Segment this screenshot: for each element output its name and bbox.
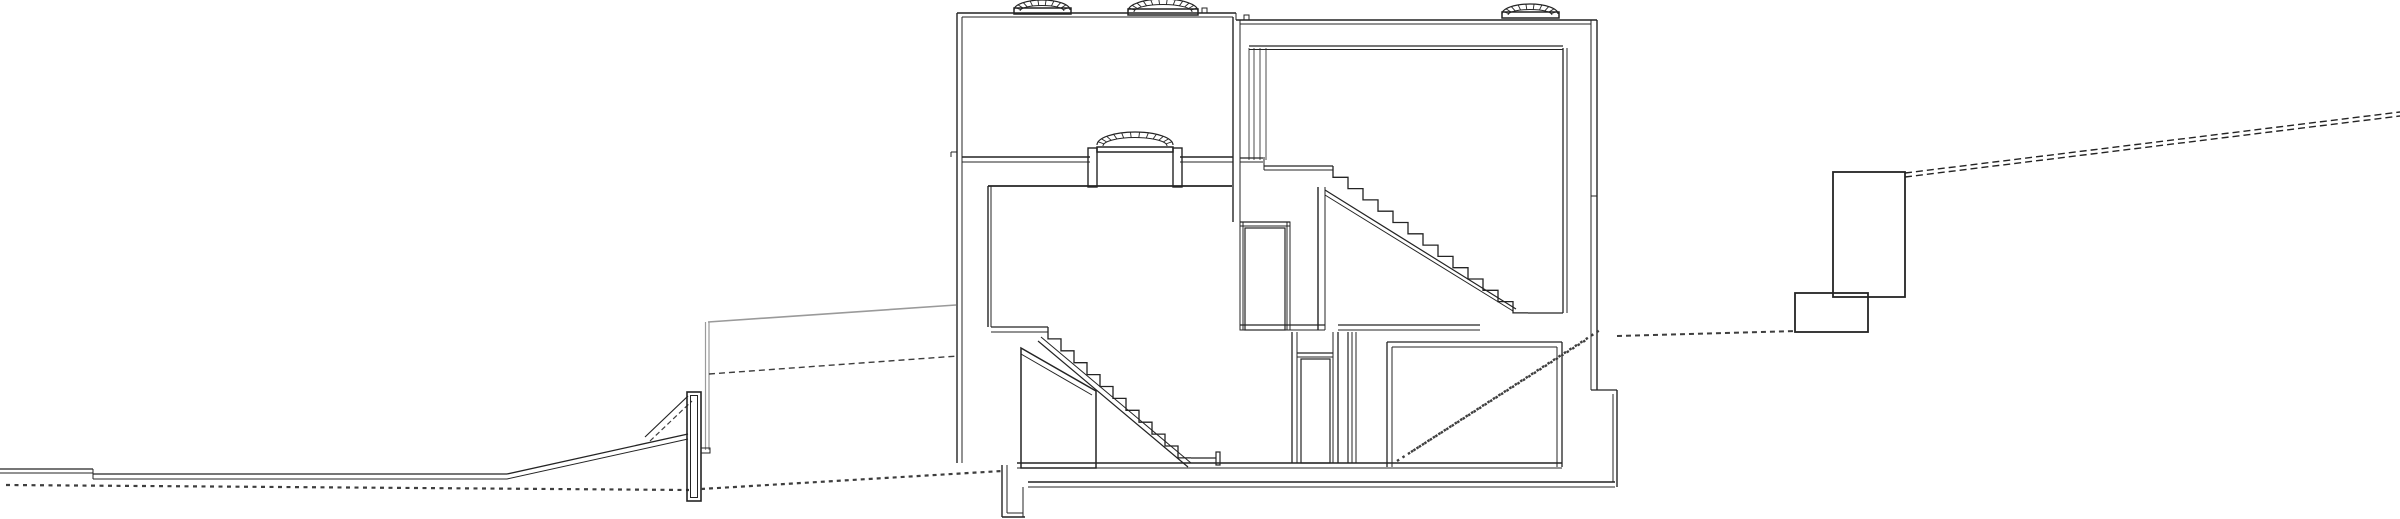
roof-vent-dome-3-tick	[1539, 5, 1542, 10]
bdoor-panel	[1301, 359, 1330, 463]
roof-vent-dome-2-tick	[1143, 1, 1146, 6]
roof-vent-dome-1-tick	[1045, 0, 1046, 5]
skylight-dome-tick	[1130, 132, 1131, 137]
walkway-hidden-edge	[709, 356, 958, 374]
main-stringer-b	[1325, 195, 1513, 311]
roof-vent-dome-2-tick	[1173, 0, 1175, 5]
ground-hidden-dashed	[6, 485, 689, 490]
mid-door-frame-left	[1240, 222, 1243, 330]
hillside-line-top	[1905, 112, 2400, 173]
retaining-wall-inner	[691, 396, 698, 498]
understair-slope-inner	[1021, 354, 1092, 395]
roof-vent-dome-1-tick	[1030, 1, 1033, 6]
roof-vent-dome-2-tick	[1132, 5, 1137, 8]
understair-wall	[1021, 348, 1096, 468]
roof-vent-dome-3-tick	[1526, 4, 1527, 9]
skylight-dome-arc-outer	[1097, 132, 1173, 145]
terrain-slope-top	[507, 434, 688, 474]
skylight-dome-tick	[1163, 139, 1168, 142]
skylight-dome-tick	[1146, 133, 1148, 138]
skylight-dome-tick	[1114, 134, 1117, 139]
basement-stringer-b	[1041, 337, 1191, 463]
skylight-dome-tick	[1098, 142, 1104, 144]
right-grade-dashed	[1617, 331, 1796, 336]
skylight-curb-left	[1088, 148, 1097, 187]
roof-vent-dome-2-tick	[1185, 3, 1189, 7]
roof-vent-dome-2-base	[1128, 9, 1198, 15]
skylight-curb-right	[1173, 148, 1182, 187]
roof-vent-dome-2-tick	[1151, 0, 1153, 5]
architectural-section-page	[0, 0, 2400, 519]
terrain-slope-bot	[507, 439, 688, 479]
skylight-dome-tick	[1166, 142, 1172, 144]
mid-door-panel	[1245, 228, 1285, 330]
skylight-dome-arc-inner	[1103, 138, 1167, 147]
skylight-dome-tick	[1107, 136, 1111, 140]
garden-shed-low	[1795, 293, 1868, 332]
roof-vent-dome-2-tick	[1189, 5, 1194, 8]
retaining-wall-outer	[687, 392, 701, 501]
mid-door-frame-right	[1287, 222, 1290, 330]
hillside-line-bot	[1905, 116, 2400, 177]
roof-vent-dome-3-tick	[1518, 5, 1521, 10]
main-stringer-a	[1325, 190, 1516, 309]
main-staircase	[1333, 166, 1528, 313]
ramp-edge-solid	[645, 396, 688, 437]
roof-vent-dome-3-tick	[1533, 4, 1534, 9]
roof-parapet-nub	[1244, 15, 1249, 20]
hidden-stair-lower	[1397, 340, 1586, 461]
building-section-drawing	[0, 0, 2400, 519]
basement-staircase	[1048, 327, 1191, 458]
garden-shed-tall	[1833, 172, 1905, 297]
skylight-dome-tick	[1122, 133, 1124, 138]
roof-vent-dome-1-tick	[1057, 3, 1061, 7]
roof-vent-dome-1-tick	[1051, 1, 1054, 6]
grade-hidden-dashed	[701, 471, 1002, 489]
roof-vent-dome-3-tick	[1511, 7, 1515, 11]
walkway-top-edge	[708, 305, 956, 322]
roof-vent-dome-2-tick	[1179, 1, 1182, 6]
roof-vent-dome-2-tick	[1159, 0, 1160, 5]
roof-vent-dome-1-tick	[1023, 3, 1027, 7]
roof-curb-nub	[1202, 8, 1207, 13]
skylight-dome-tick	[1101, 139, 1106, 142]
skylight-dome-tick	[1159, 136, 1163, 140]
skylight-dome-base	[1097, 147, 1173, 152]
skylight-dome-tick	[1139, 132, 1140, 137]
hidden-stair-upper	[1411, 330, 1600, 452]
roof-vent-dome-3-tick	[1545, 7, 1549, 11]
skylight-dome-tick	[1153, 134, 1156, 139]
basement-stringer-a	[1038, 341, 1188, 467]
roof-vent-dome-1-tick	[1038, 0, 1039, 5]
roof-vent-dome-2-tick	[1166, 0, 1167, 5]
roof-vent-dome-2-tick	[1137, 3, 1141, 7]
